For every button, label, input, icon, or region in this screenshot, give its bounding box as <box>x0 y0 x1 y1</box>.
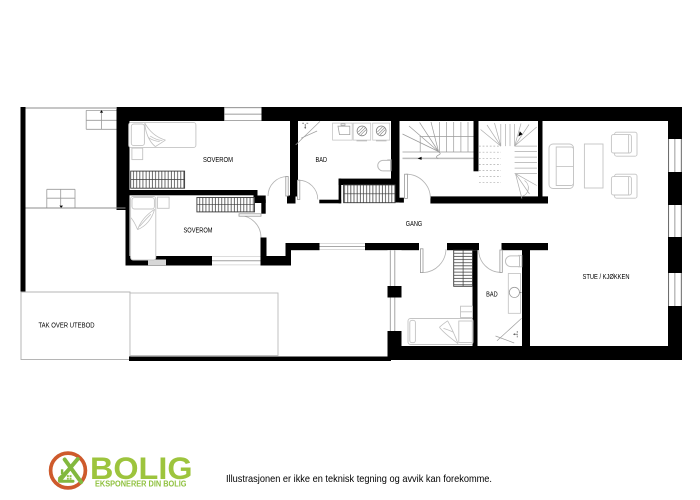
svg-text:Illustrasjonen er ikke en tekn: Illustrasjonen er ikke en teknisk tegnin… <box>226 474 492 485</box>
svg-text:TAK OVER UTEBOD: TAK OVER UTEBOD <box>39 321 95 330</box>
svg-text:BAD: BAD <box>486 289 498 298</box>
svg-text:EKSPONERER DIN BOLIG: EKSPONERER DIN BOLIG <box>95 479 187 488</box>
svg-text:BAD: BAD <box>316 155 328 164</box>
svg-text:SOVEROM: SOVEROM <box>203 155 233 164</box>
svg-text:SOVEROM: SOVEROM <box>184 226 213 235</box>
svg-text:GANG: GANG <box>406 219 423 228</box>
svg-text:STUE / KJØKKEN: STUE / KJØKKEN <box>583 272 630 281</box>
